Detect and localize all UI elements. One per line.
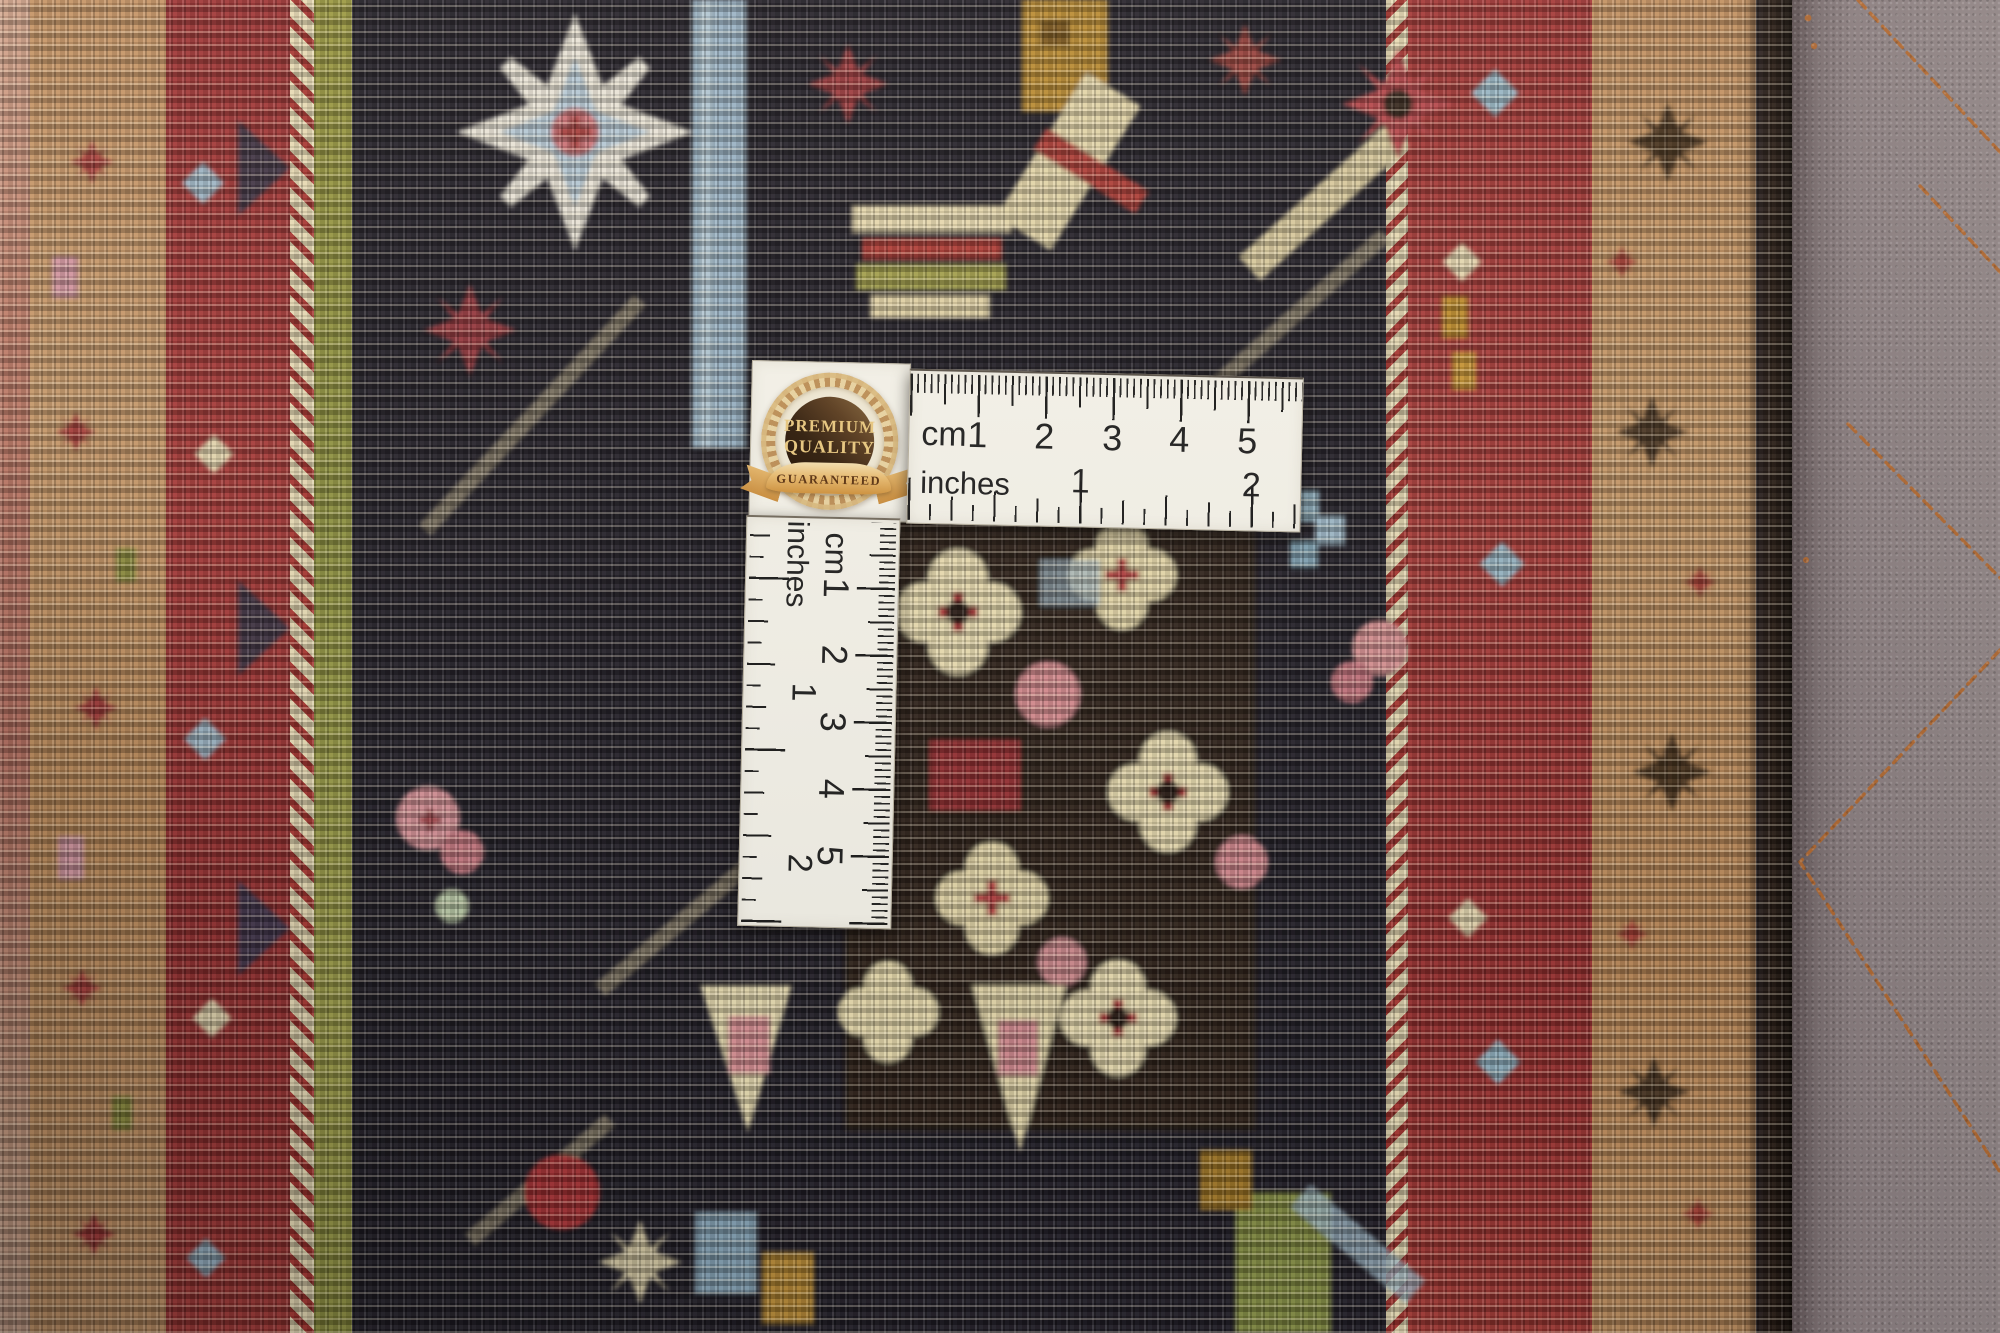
ruler-vertical-inch-number: 2: [781, 845, 818, 882]
ruler-vertical-cm-number: 1: [817, 570, 854, 607]
ruler-vertical-cm-number: 2: [816, 637, 853, 674]
badge-quality-text: QUALITY: [784, 436, 875, 459]
quality-badge-card: PREMIUM QUALITY GUARANTEED: [748, 360, 911, 523]
badge-ribbon: GUARANTEED: [742, 461, 916, 505]
ruler-horizontal-cm-number: 3: [1092, 417, 1133, 460]
rug-edge-binding: [1744, 0, 1792, 1333]
ribbon-band: GUARANTEED: [766, 461, 892, 495]
ruler-horizontal-inch-ticks: [907, 474, 1300, 529]
ruler-horizontal-cm-number: 2: [1024, 415, 1065, 458]
ruler-horizontal-cm-number: 4: [1159, 418, 1200, 461]
ruler-horizontal-cm-number: 1: [957, 414, 998, 457]
leather-stitching: [1792, 0, 2000, 1333]
badge-premium-text: PREMIUM: [784, 416, 876, 438]
leather-background: [1792, 0, 2000, 1333]
photo-scene: PREMIUM QUALITY GUARANTEED cm 1 2 3 4 5 …: [0, 0, 2000, 1333]
ruler-assembly: PREMIUM QUALITY GUARANTEED cm 1 2 3 4 5 …: [739, 360, 1312, 943]
ruler-vertical: cm inches 1 2 3 4 5 1 2: [737, 515, 900, 929]
ruler-vertical-inch-number: 1: [785, 674, 822, 711]
ruler-horizontal-cm-number: 5: [1227, 420, 1268, 463]
ruler-vertical-inches-label: inches: [779, 516, 813, 613]
badge-guaranteed-text: GUARANTEED: [776, 468, 881, 488]
ruler-horizontal: cm 1 2 3 4 5 inches 1 2: [906, 369, 1303, 533]
ruler-vertical-cm-number: 4: [813, 771, 850, 808]
